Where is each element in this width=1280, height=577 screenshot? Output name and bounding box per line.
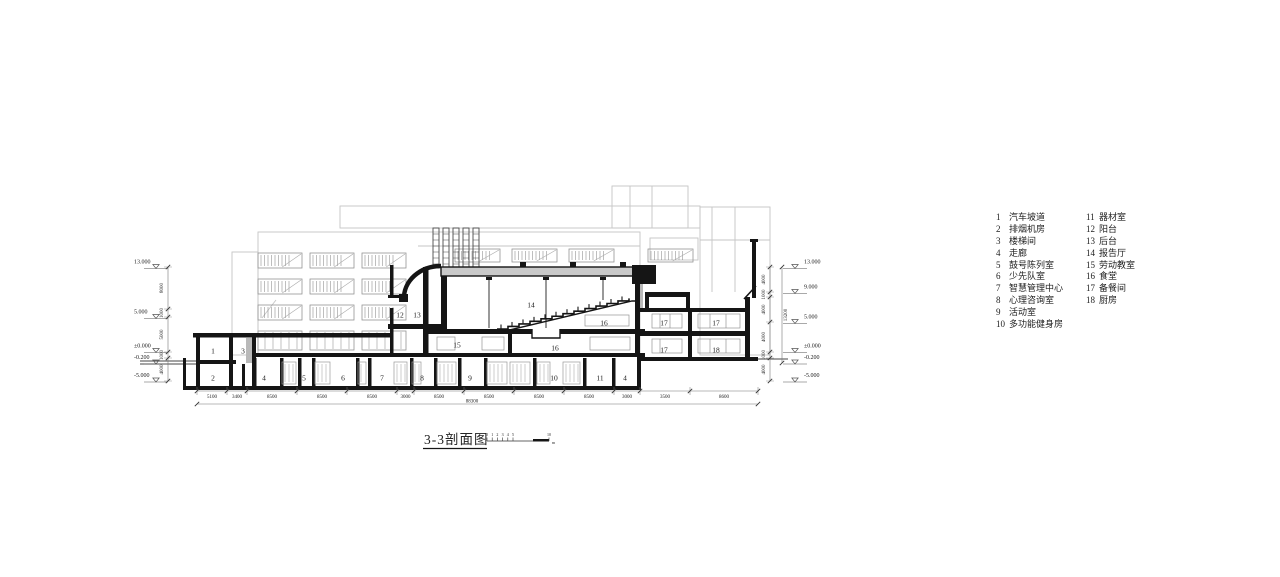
elevation-label: 5.000 (804, 315, 818, 321)
legend-item-name: 劳动教室 (1099, 260, 1135, 270)
dimension-label: 4000 (762, 364, 767, 375)
room-label: 7 (380, 374, 384, 383)
basement-wall (253, 358, 257, 387)
bg-parapet-band (340, 206, 700, 228)
room-label: 16 (600, 319, 608, 328)
basement-wall (458, 358, 462, 387)
scale-tick-label: 1 (491, 432, 493, 437)
basement-wall (368, 358, 372, 387)
legend-item-name: 报告厅 (1099, 248, 1126, 258)
legend-item: 14报告厅 (1086, 248, 1135, 260)
legend-item-number: 10 (996, 319, 1009, 331)
legend-item-name: 器材室 (1099, 212, 1126, 222)
legend-item-number: 7 (996, 283, 1009, 295)
room-label: 8 (420, 374, 424, 383)
legend-item-name: 食堂 (1099, 271, 1117, 281)
room-label: 6 (341, 374, 345, 383)
elevation-label: -5.000 (804, 373, 820, 379)
dimension-label: 3400 (232, 395, 243, 400)
dimension-label: 8500 (484, 395, 495, 400)
legend-item-number: 17 (1086, 283, 1099, 295)
legend-item-number: 11 (1086, 212, 1099, 224)
dimension-label: 8500 (434, 395, 445, 400)
level-triangle (792, 290, 798, 294)
level-triangle (792, 265, 798, 269)
level-triangle (153, 349, 159, 353)
raked-slab (497, 301, 640, 333)
legend-item-number: 8 (996, 295, 1009, 307)
legend-item: 12阳台 (1086, 224, 1135, 236)
legend-item: 10多功能健身房 (996, 319, 1063, 331)
legend-item-name: 走廊 (1009, 248, 1027, 258)
level-triangle (153, 315, 159, 319)
room-label: 14 (527, 301, 535, 310)
basement-walls (253, 358, 616, 387)
legend-item-number: 5 (996, 260, 1009, 272)
left-dimension-chain: 80001000500010004000 (160, 265, 172, 383)
bg-stair-line (262, 300, 276, 318)
walkway-roof-slab (193, 333, 392, 338)
elevation-label: 13.000 (134, 260, 151, 266)
dimension-label: 3000 (401, 395, 412, 400)
legend-item-name: 智慧管理中心 (1009, 283, 1063, 293)
level-triangle (792, 378, 798, 382)
legend-item-name: 心理咨询室 (1009, 295, 1054, 305)
legend-item: 5鼓号陈列室 (996, 260, 1063, 272)
scale-tick-label: 2 (496, 432, 498, 437)
legend-item-name: 汽车坡道 (1009, 212, 1045, 222)
legend-item-number: 16 (1086, 271, 1099, 283)
hall-roof-slab (441, 267, 639, 276)
wing-floor-slab (640, 331, 750, 336)
legend-item-number: 2 (996, 224, 1009, 236)
legend-item: 8心理咨询室 (996, 295, 1063, 307)
level-triangle (792, 320, 798, 324)
legend-item: 2排烟机房 (996, 224, 1063, 236)
room-label: 17 (660, 319, 668, 328)
scale-tick-label: 3 (502, 432, 504, 437)
overall-dimension-label: 13200 (784, 308, 789, 321)
curved-canopy (404, 266, 441, 299)
legend-item: 16食堂 (1086, 271, 1135, 283)
room-label: 17 (660, 346, 668, 355)
legend-item-name: 排烟机房 (1009, 224, 1045, 234)
elevation-label: -0.200 (804, 355, 820, 361)
dimension-label: 5000 (160, 329, 165, 340)
dimension-label: 5100 (207, 395, 218, 400)
legend-item: 3楼梯间 (996, 236, 1063, 248)
room-label: 15 (453, 341, 461, 350)
room-label: 10 (550, 374, 558, 383)
legend-item-number: 18 (1086, 295, 1099, 307)
seating-steps (497, 298, 629, 329)
dimension-label: 4000 (762, 332, 767, 343)
dimension-label: 8500 (317, 395, 328, 400)
legend-item-name: 后台 (1099, 236, 1117, 246)
room-label: 2 (211, 374, 215, 383)
legend-item: 15劳动教室 (1086, 260, 1135, 272)
legend-item-number: 15 (1086, 260, 1099, 272)
room-label: 3 (241, 347, 245, 356)
hall-block (388, 262, 656, 357)
room-label: 16 (551, 344, 559, 353)
elevation-label: -5.000 (134, 373, 150, 379)
legend-item: 18厨房 (1086, 295, 1135, 307)
legend-item-number: 9 (996, 307, 1009, 319)
basement-wall (533, 358, 537, 387)
legend-item: 4走廊 (996, 248, 1063, 260)
basement-wall (612, 358, 616, 387)
room-label: 17 (712, 319, 720, 328)
scale-tick-label: 5 (512, 432, 514, 437)
room-label: 9 (468, 374, 472, 383)
basement-wall (298, 358, 302, 387)
elevation-label: 13.000 (804, 260, 821, 266)
dimension-label: 1000 (160, 308, 165, 319)
legend-item-name: 活动室 (1009, 307, 1036, 317)
legend-item: 9活动室 (996, 307, 1063, 319)
level-triangle (153, 378, 159, 382)
basement-louver (315, 362, 330, 384)
scale-unit-label: m (552, 440, 556, 445)
room-label: 11 (596, 374, 603, 383)
scale-tick-label: 10 (547, 432, 551, 437)
ground-slab (255, 353, 645, 357)
legend-item-name: 阳台 (1099, 224, 1117, 234)
legend-item-number: 12 (1086, 224, 1099, 236)
bg-tower (612, 186, 688, 228)
level-triangle (792, 360, 798, 364)
dimension-label: 8500 (267, 395, 278, 400)
dimension-label: 4000 (762, 274, 767, 285)
scale-tick-label: 4 (507, 432, 509, 437)
dimension-label: 8600 (719, 395, 730, 400)
dimension-label: 1000 (160, 350, 165, 361)
dimension-label: 3000 (622, 395, 633, 400)
scale-bar: 01234510m (486, 432, 556, 445)
scale-tick-label: 0 (486, 432, 488, 437)
balcony-floor-slab (388, 324, 446, 329)
architectural-sheet: 1234567891011412131415161617171718 51003… (0, 0, 1280, 577)
legend-item-name: 楼梯间 (1009, 236, 1036, 246)
basement-wall (583, 358, 587, 387)
basement-louver (563, 362, 580, 384)
room-label: 5 (302, 374, 306, 383)
level-triangle (153, 265, 159, 269)
legend-item-name: 鼓号陈列室 (1009, 260, 1054, 270)
elevation-label: 5.000 (134, 310, 148, 316)
dimension-label: 4000 (160, 364, 165, 375)
room-label: 12 (396, 311, 404, 320)
room-label: 13 (413, 311, 421, 320)
legend-item: 1汽车坡道 (996, 212, 1063, 224)
legend-item-number: 13 (1086, 236, 1099, 248)
dimension-label: 1000 (762, 289, 767, 300)
legend-item: 17备餐间 (1086, 283, 1135, 295)
legend-item: 11器材室 (1086, 212, 1135, 224)
dimension-label: 8500 (584, 395, 595, 400)
elevation-label: 9.000 (804, 285, 818, 291)
legend-column-1: 1汽车坡道2排烟机房3楼梯间4走廊5鼓号陈列室6少先队室7智慧管理中心8心理咨询… (996, 212, 1063, 331)
hall-right-parapet (632, 265, 656, 284)
wing-ground-slab (640, 357, 758, 361)
wing-roof-slab (640, 308, 748, 312)
room-label: 1 (211, 347, 215, 356)
dimension-label: 8000 (160, 283, 165, 294)
legend-column-2: 11器材室12阳台13后台14报告厅15劳动教室16食堂17备餐间18厨房 (1086, 212, 1135, 307)
legend-item-name: 备餐间 (1099, 283, 1126, 293)
elevation-label: -0.200 (134, 355, 150, 361)
room-number-labels: 1234567891011412131415161617171718 (211, 301, 720, 383)
ramp-house (196, 333, 256, 388)
legend-item-number: 4 (996, 248, 1009, 260)
room-label: 18 (712, 346, 720, 355)
legend-item-name: 厨房 (1099, 295, 1117, 305)
stage-notch (532, 329, 560, 338)
dimension-label: 3500 (660, 395, 671, 400)
dimension-label: 4000 (762, 304, 767, 315)
legend-item: 13后台 (1086, 236, 1135, 248)
elevation-label: ±0.000 (134, 344, 151, 350)
level-triangle (792, 349, 798, 353)
legend-item-name: 少先队室 (1009, 271, 1045, 281)
legend-item: 7智慧管理中心 (996, 283, 1063, 295)
drawing-title: 3-3剖面图 (424, 432, 489, 447)
legend-item: 6少先队室 (996, 271, 1063, 283)
legend-item-number: 14 (1086, 248, 1099, 260)
dimension-label: 8500 (534, 395, 545, 400)
right-dimension-chain: 40001000400040001000400013200 (762, 265, 789, 383)
elevation-label: ±0.000 (804, 344, 821, 350)
legend-item-number: 6 (996, 271, 1009, 283)
room-label: 4 (623, 374, 627, 383)
legend-item-name: 多功能健身房 (1009, 319, 1063, 329)
dimension-label: 8500 (367, 395, 378, 400)
skylight-box-roof (645, 292, 690, 297)
legend-item-number: 1 (996, 212, 1009, 224)
overall-dimension-label: 88300 (466, 400, 479, 405)
dimension-label: 1000 (762, 350, 767, 361)
legend-item-number: 3 (996, 236, 1009, 248)
room-label: 4 (262, 374, 266, 383)
